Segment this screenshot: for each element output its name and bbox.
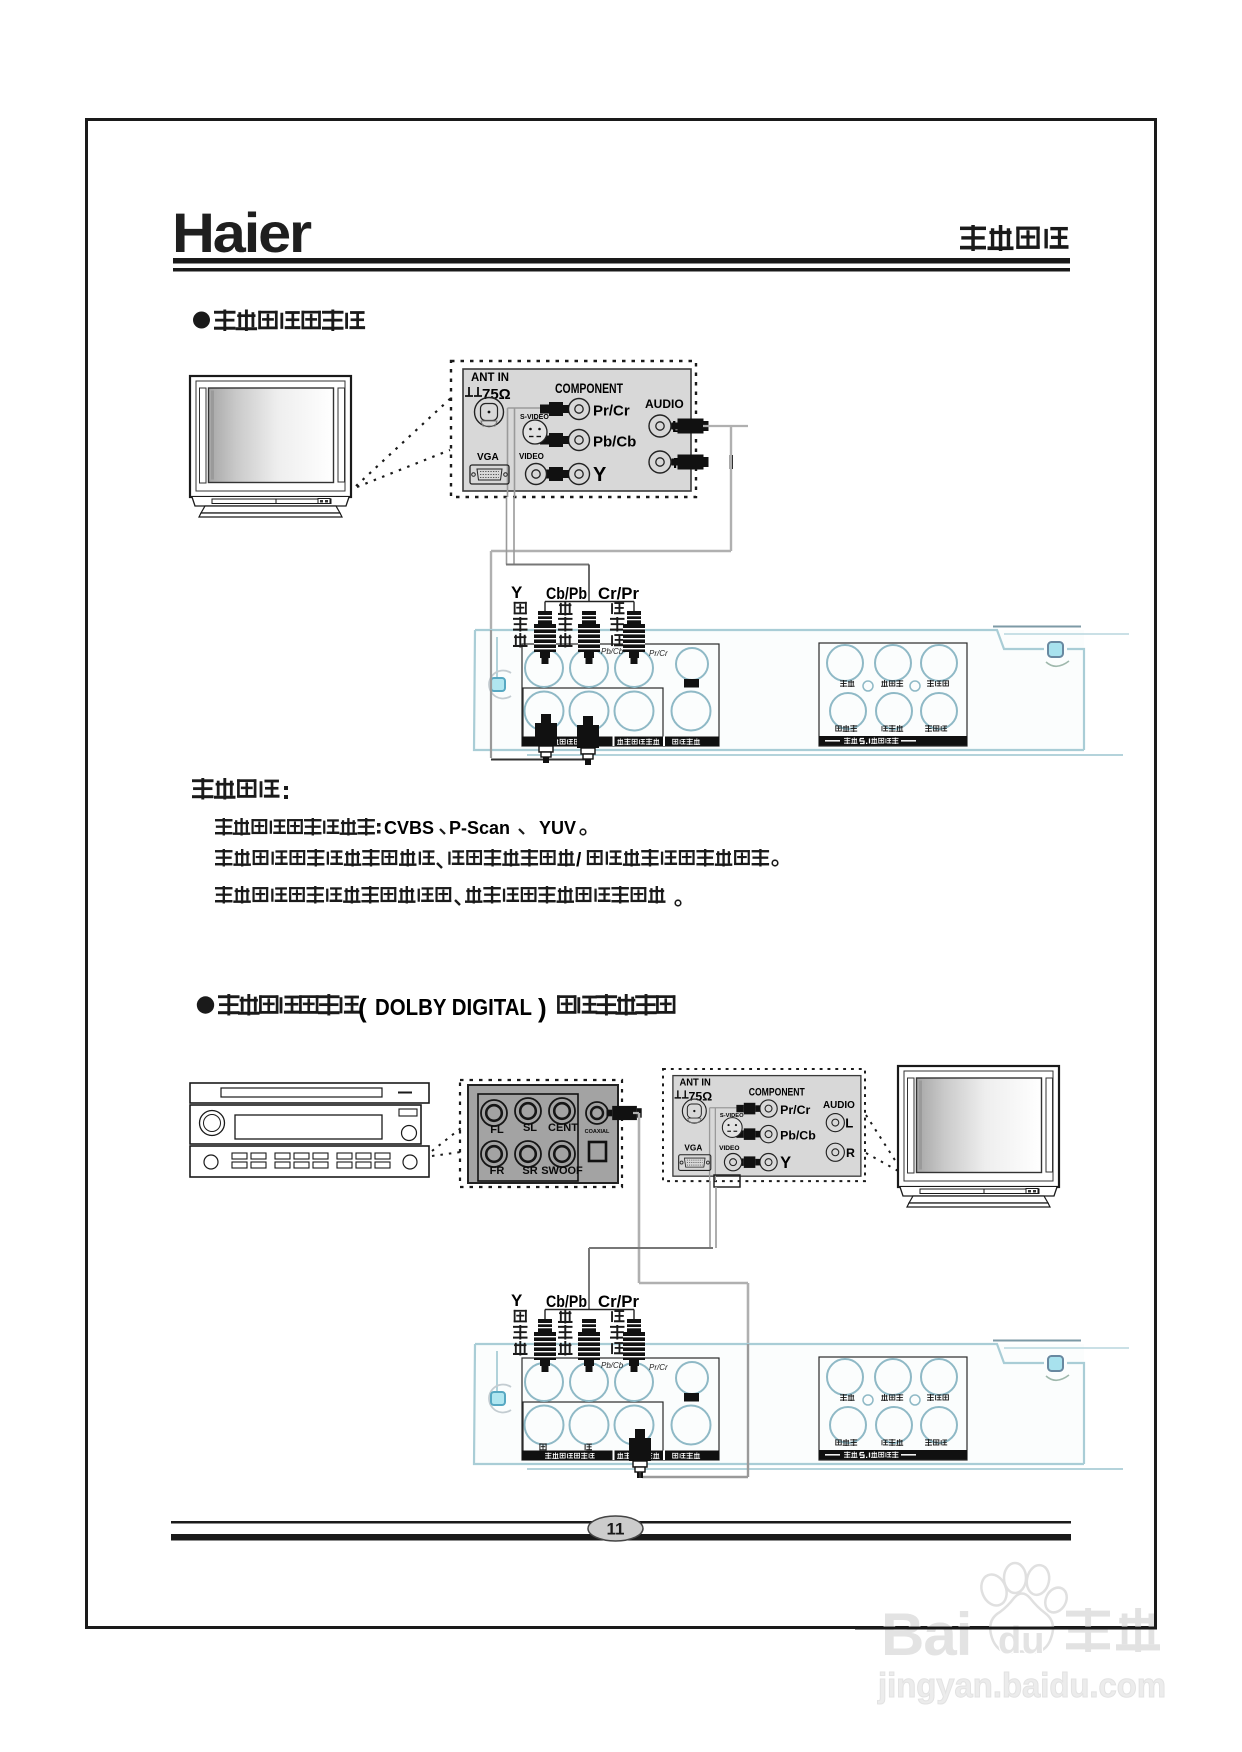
- svg-text:Cr/Pr: Cr/Pr: [598, 1292, 639, 1311]
- svg-text:Pb/Cb: Pb/Cb: [601, 1361, 624, 1370]
- svg-text:Bai: Bai: [881, 1601, 971, 1668]
- svg-text:Y: Y: [511, 583, 523, 602]
- svg-text:AUDIO: AUDIO: [823, 1100, 855, 1111]
- svg-text:AUDIO: AUDIO: [645, 397, 684, 411]
- svg-text:VGA: VGA: [684, 1144, 702, 1153]
- svg-text:Y: Y: [780, 1154, 791, 1172]
- svg-text:CVBS: CVBS: [384, 818, 434, 838]
- svg-text:L: L: [845, 1116, 853, 1131]
- svg-text:11: 11: [607, 1520, 625, 1539]
- svg-text:Cr/Pr: Cr/Pr: [598, 584, 639, 603]
- svg-text:YUV: YUV: [539, 818, 576, 838]
- svg-text:SL: SL: [523, 1122, 537, 1134]
- svg-text:): ): [538, 993, 547, 1023]
- svg-text:Pb/Cb: Pb/Cb: [601, 647, 624, 656]
- svg-text:VIDEO: VIDEO: [719, 1145, 739, 1152]
- svg-text:VIDEO: VIDEO: [519, 452, 544, 461]
- svg-text:COMPONENT: COMPONENT: [749, 1086, 805, 1098]
- svg-text:ANT IN: ANT IN: [471, 370, 509, 384]
- svg-text:R: R: [846, 1146, 855, 1160]
- svg-text:Pr/Cr: Pr/Cr: [649, 649, 668, 658]
- svg-text:Cb/Pb: Cb/Pb: [546, 1292, 587, 1311]
- svg-text:FL: FL: [490, 1124, 504, 1136]
- svg-text:Pr/Cr: Pr/Cr: [649, 1363, 668, 1372]
- svg-text:jingyan.baidu.com: jingyan.baidu.com: [877, 1667, 1166, 1705]
- svg-text:Haier: Haier: [172, 201, 311, 264]
- svg-text:SR: SR: [522, 1165, 537, 1177]
- svg-text:Pb/Cb: Pb/Cb: [593, 434, 636, 451]
- svg-text:(: (: [358, 993, 367, 1023]
- svg-text:Cb/Pb: Cb/Pb: [546, 584, 587, 603]
- svg-text:COMPONENT: COMPONENT: [555, 381, 624, 396]
- svg-text:SWOOF: SWOOF: [541, 1165, 583, 1177]
- svg-text:FR: FR: [490, 1165, 505, 1177]
- svg-text:Pb/Cb: Pb/Cb: [780, 1128, 816, 1142]
- svg-text:75Ω: 75Ω: [482, 386, 511, 403]
- svg-text:Pr/Cr: Pr/Cr: [780, 1103, 810, 1117]
- svg-text:COAXIAL: COAXIAL: [585, 1129, 610, 1135]
- svg-text:Pr/Cr: Pr/Cr: [593, 403, 630, 420]
- svg-text:du: du: [998, 1620, 1044, 1662]
- svg-text:ANT IN: ANT IN: [679, 1077, 710, 1088]
- svg-text:DOLBY DIGITAL: DOLBY DIGITAL: [375, 994, 532, 1020]
- svg-text:CENT: CENT: [548, 1122, 578, 1134]
- svg-text:VGA: VGA: [477, 452, 499, 463]
- svg-text:Y: Y: [511, 1291, 523, 1310]
- svg-text:P-Scan: P-Scan: [449, 818, 510, 838]
- svg-text:/: /: [576, 850, 582, 871]
- svg-text:Y: Y: [593, 464, 607, 486]
